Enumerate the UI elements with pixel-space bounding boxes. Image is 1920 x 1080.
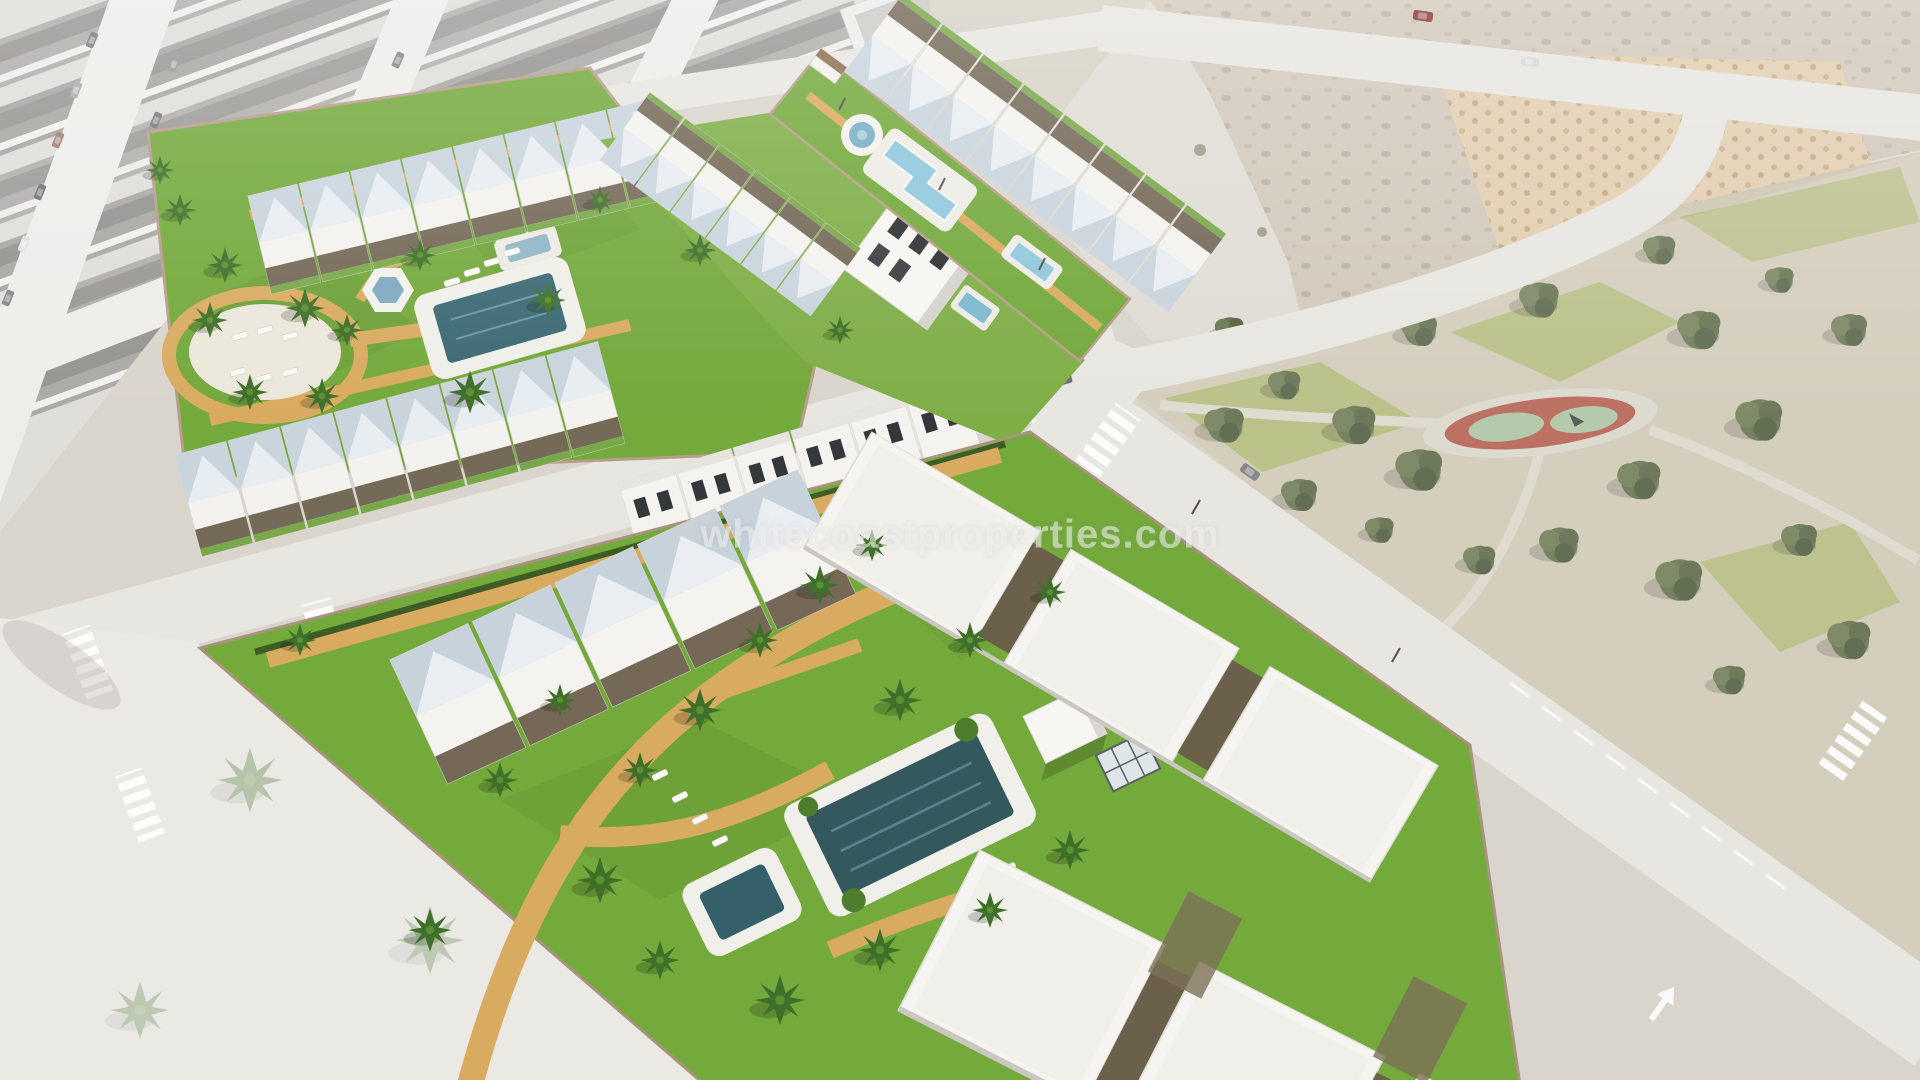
- atmospheric-haze: [0, 0, 1920, 420]
- aerial-render: whitecoastproperties.com: [0, 0, 1920, 1080]
- aerial-render-svg: [0, 0, 1920, 1080]
